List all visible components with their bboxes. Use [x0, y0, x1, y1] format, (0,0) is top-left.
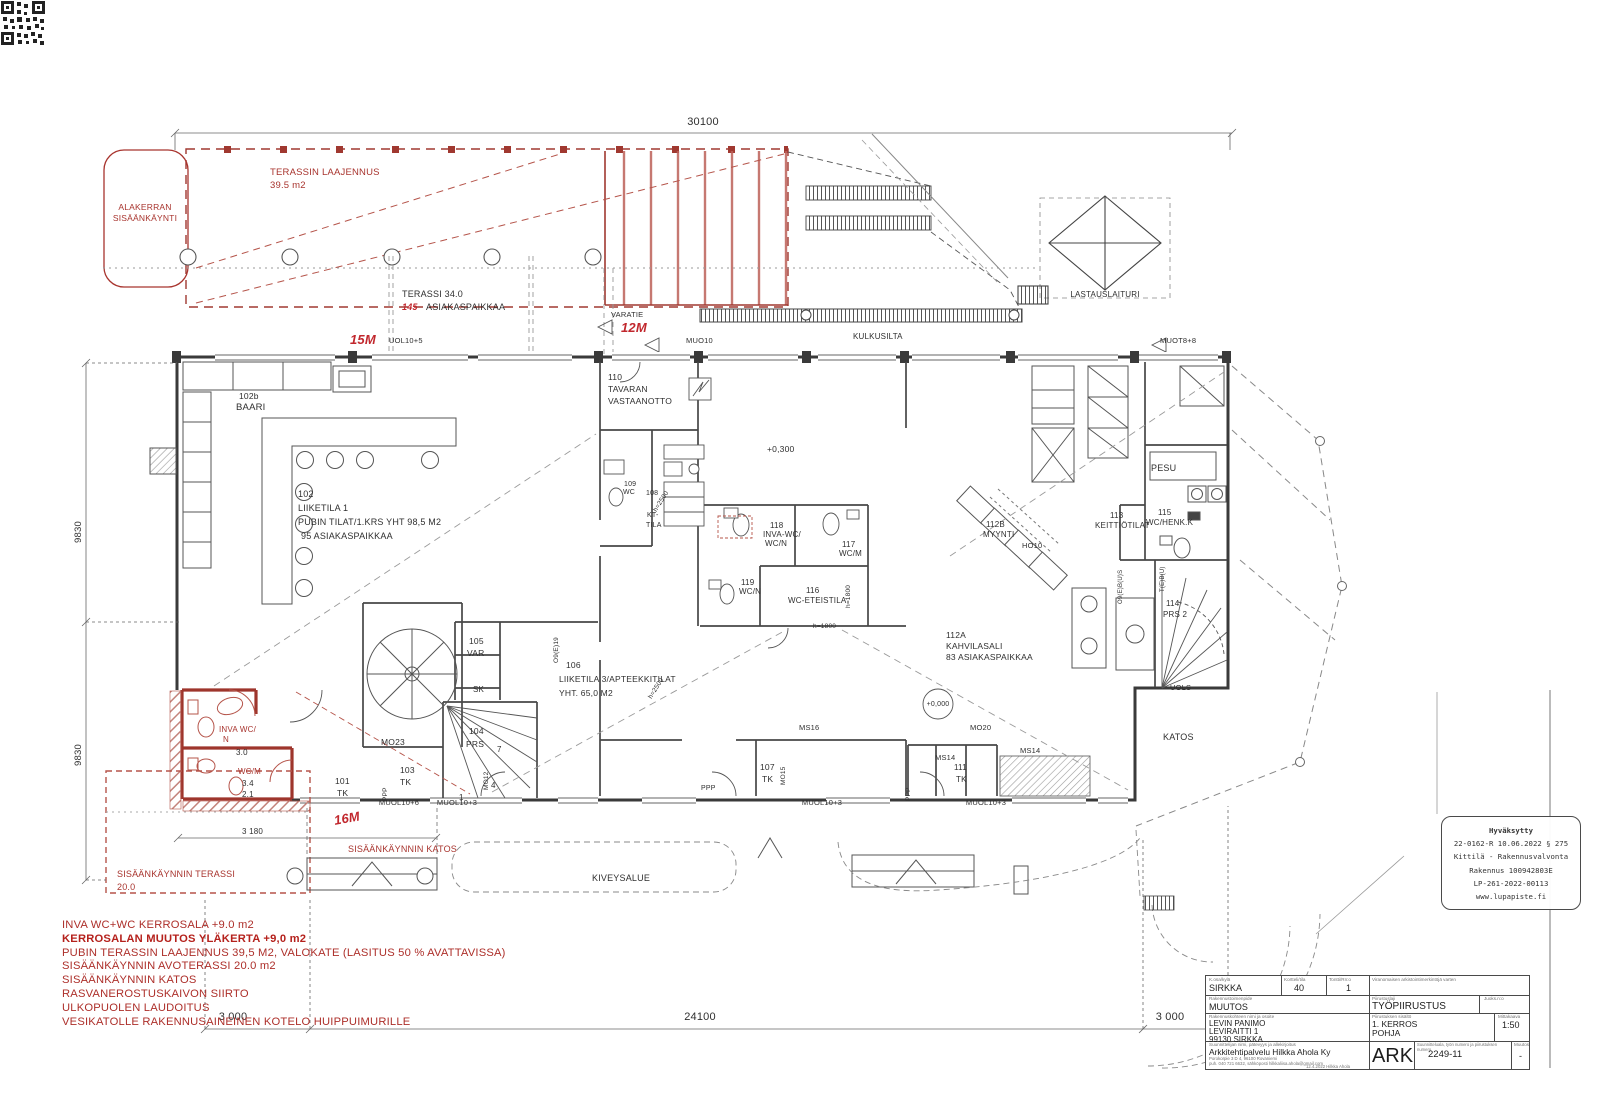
- spiral-stair: [367, 629, 457, 719]
- tb-label-district: K.osa/kylä: [1209, 978, 1230, 983]
- loading-dock: [1018, 196, 1170, 304]
- stamp-line: 22-0162-R 10.06.2022 § 275: [1442, 837, 1580, 850]
- red-escape-line: [296, 692, 470, 794]
- tb-discipline: ARK: [1371, 1046, 1414, 1066]
- change-note-line: SISÄÄNKÄYNNIN KATOS: [62, 974, 506, 988]
- tb-label-running-no: Juoks.n:o: [1484, 997, 1504, 1002]
- tb-label-revision: Muutos: [1514, 1043, 1529, 1048]
- cafe-tables: [1072, 588, 1154, 670]
- ramp-stairs: [788, 152, 1020, 309]
- paving-outline: [452, 838, 1140, 892]
- qr-code: [0, 0, 46, 46]
- stamp-line: Kittilä - Rakennusvalvonta: [1442, 850, 1580, 863]
- bar-furniture: [150, 362, 456, 604]
- change-note-line: RASVANEROSTUSKAIVON SIIRTO: [62, 988, 506, 1002]
- escape-route-arrows: [598, 320, 1166, 352]
- tb-block: 40: [1294, 984, 1304, 993]
- stamp-line: Rakennus 100942803E: [1442, 864, 1580, 877]
- lower-entrance-outline: [104, 150, 188, 287]
- approval-stamp-lines: Hyväksytty22-0162-R 10.06.2022 § 275Kitt…: [1442, 824, 1580, 903]
- change-note-line: ULKOPUOLEN LAUDOITUS: [62, 1002, 506, 1016]
- title-block: K.osa/kylä SIRKKA Kortteli/tila 40 Tontt…: [1205, 975, 1530, 1070]
- stair-104: [447, 706, 537, 798]
- wc-fixtures: [604, 378, 859, 604]
- door-arcs: [481, 362, 944, 796]
- change-note-line: SISÄÄNKÄYNNIN AVOTERASSI 20.0 m2: [62, 960, 506, 974]
- stamp-leaders: [1316, 692, 1437, 934]
- tb-line: [1511, 1041, 1512, 1069]
- tb-line: [1479, 995, 1480, 1013]
- tb-label-block: Kortteli/tila: [1284, 978, 1305, 983]
- tb-scale: 1:50: [1502, 1021, 1520, 1030]
- tb-label-authority: Viranomaisen arkistointimerkintöjä varte…: [1372, 978, 1456, 983]
- small-hatch-block: [1144, 896, 1174, 910]
- site-boundary-dashed: [862, 140, 1000, 285]
- tb-label-scale: Mittakaava: [1498, 1015, 1520, 1020]
- entrance-canopy: [287, 808, 1028, 894]
- change-note-line: INVA WC+WC KERROSALA +9.0 m2: [62, 919, 506, 933]
- walkway-bridge: [700, 309, 1022, 322]
- tb-line: [1369, 976, 1370, 1069]
- terrace-guides: [389, 256, 613, 354]
- level-mark-circle: [923, 689, 953, 719]
- tb-drawing-type: TYÖPIIRUSTUS: [1372, 1002, 1446, 1012]
- tb-drawing-number: 2249-11: [1428, 1050, 1462, 1060]
- counter-hatch: [1000, 756, 1090, 796]
- stamp-line: www.lupapiste.fi: [1442, 890, 1580, 903]
- site-pins: [1296, 437, 1347, 767]
- tb-signature: 12.4.2022 Hilkka Ahola: [1306, 1065, 1350, 1069]
- tb-revision: -: [1519, 1052, 1522, 1061]
- tb-district: SIRKKA: [1209, 984, 1242, 993]
- site-boundary: [872, 134, 1008, 278]
- door-arc: [290, 690, 322, 722]
- change-note-line: KERROSALAN MUUTOS YLÄKERTA +9,0 m2: [62, 933, 506, 947]
- stamp-line: Hyväksytty: [1442, 824, 1580, 837]
- red-annex: [170, 690, 310, 811]
- stamp-line: LP-261-2022-00113: [1442, 877, 1580, 890]
- right-canopy-dashed: [1136, 366, 1342, 826]
- tb-label-plot: Tontti/Rn:o: [1329, 978, 1351, 983]
- tb-line: [1414, 1041, 1415, 1069]
- tb-content-2: POHJA: [1372, 1029, 1400, 1038]
- tb-line: [1281, 976, 1282, 995]
- top-windows: [172, 351, 1231, 363]
- drawing-sheet: 30100TERASSIN LAAJENNUS39.5 m2ALAKERRANS…: [0, 0, 1600, 1111]
- change-note-line: PUBIN TERASSIN LAAJENNUS 39,5 M2, VALOKA…: [62, 947, 506, 961]
- change-note-line: VESIKATOLLE RAKENNUSAINEINEN KOTELO HUIP…: [62, 1016, 506, 1030]
- kitchen-fixtures: [1032, 366, 1226, 558]
- change-notes: INVA WC+WC KERROSALA +9.0 m2KERROSALAN M…: [62, 919, 506, 1029]
- tb-line: [1326, 976, 1327, 995]
- tb-line: [1494, 1013, 1495, 1041]
- tb-label-action: Rakennustoimenpide: [1209, 997, 1252, 1002]
- entrance-terrace-red: [106, 771, 310, 893]
- terrace-columns: [180, 249, 601, 265]
- terrace-extension-red: [186, 146, 788, 307]
- tb-line: [1206, 995, 1529, 996]
- approval-stamp: Hyväksytty22-0162-R 10.06.2022 § 275Kitt…: [1441, 816, 1581, 910]
- tb-plot: 1: [1346, 984, 1351, 993]
- tb-action: MUUTOS: [1209, 1003, 1248, 1012]
- serving-counter: [957, 486, 1068, 590]
- stair-114-fan: [1162, 574, 1227, 688]
